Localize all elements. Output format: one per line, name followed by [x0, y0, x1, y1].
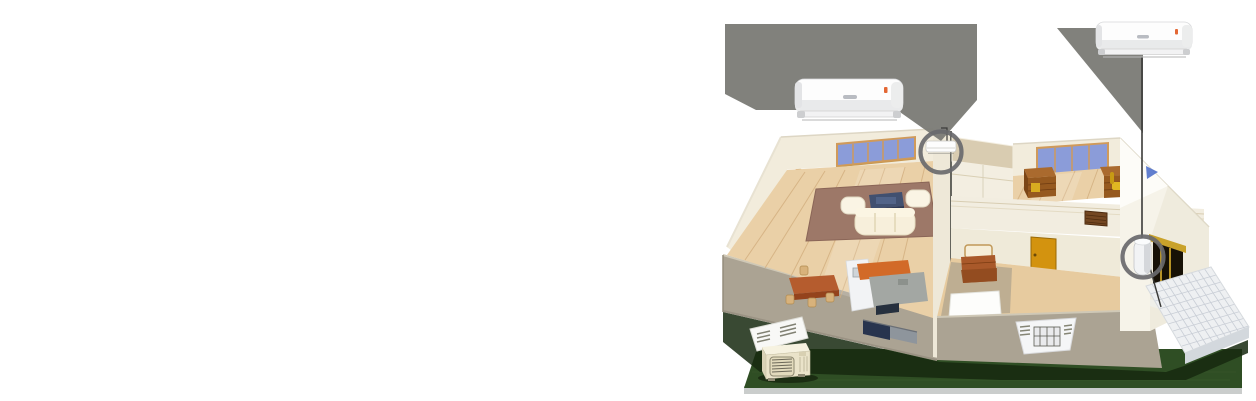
ac-louver — [799, 111, 899, 117]
door-knob — [1034, 254, 1037, 257]
illustration-canvas — [0, 0, 1256, 401]
ac-indicator-light — [1175, 29, 1178, 35]
wall-vent — [1085, 211, 1107, 226]
ac-louver — [1100, 49, 1188, 55]
sofa — [855, 208, 915, 235]
white-bench — [949, 291, 1001, 317]
armchair-right — [906, 190, 930, 207]
door — [1031, 237, 1056, 271]
ac-brand-logo-mark — [1137, 35, 1149, 39]
ac-indicator-light — [884, 87, 888, 93]
desk-left — [1024, 167, 1056, 198]
desk-chair-left — [1031, 183, 1040, 192]
indoor-unit-product-right — [1096, 22, 1192, 57]
ac-brand-logo-mark — [843, 95, 857, 99]
indoor-unit-product-left — [795, 79, 903, 120]
indoor-unit-living-room — [926, 141, 956, 154]
pipe-cylinder-unit — [1134, 238, 1151, 275]
vanity-dresser — [961, 245, 997, 283]
bay-window-right — [1016, 318, 1076, 354]
ac-installation-scene — [0, 0, 1256, 401]
